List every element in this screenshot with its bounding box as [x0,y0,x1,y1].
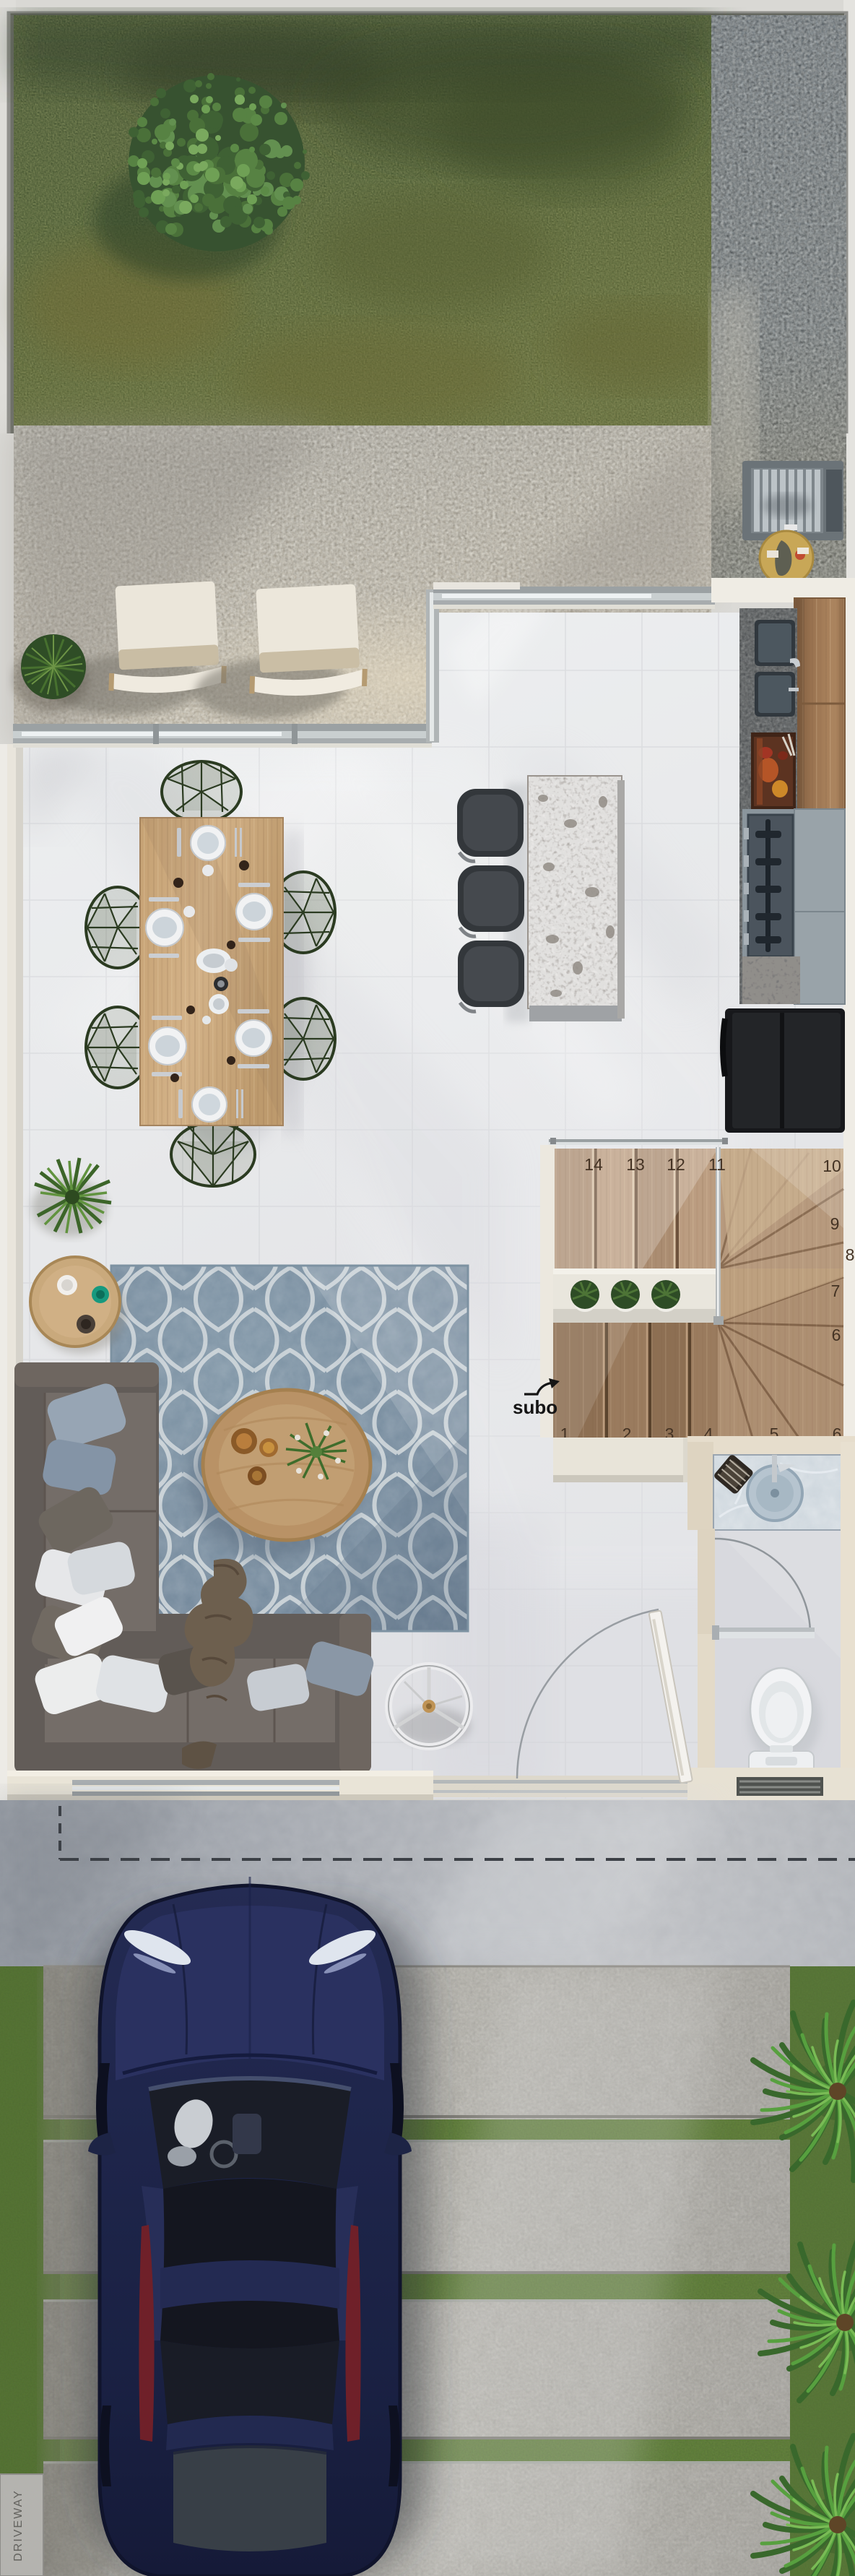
svg-text:14: 14 [584,1155,603,1174]
svg-text:subo: subo [513,1396,557,1418]
svg-text:9: 9 [830,1214,840,1233]
svg-text:11: 11 [708,1155,726,1174]
svg-text:12: 12 [667,1155,685,1174]
svg-text:13: 13 [626,1155,645,1174]
svg-text:8: 8 [846,1245,855,1264]
svg-text:7: 7 [831,1281,841,1300]
svg-text:6: 6 [832,1326,841,1344]
svg-text:DRIVEWAY: DRIVEWAY [12,2489,25,2562]
svg-text:10: 10 [823,1157,841,1175]
